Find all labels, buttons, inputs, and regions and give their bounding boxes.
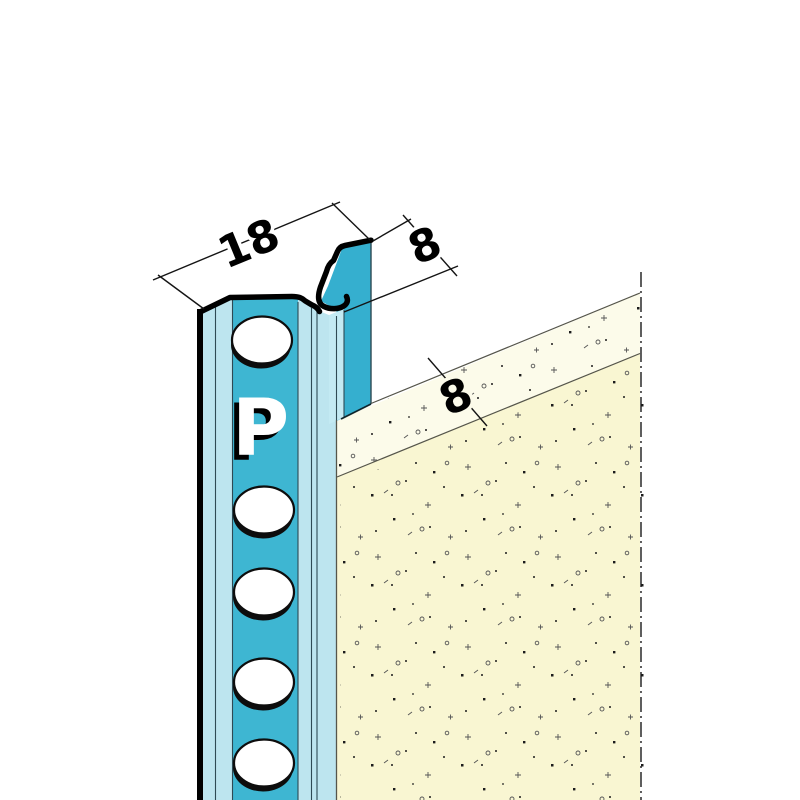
perforation-hole [233, 487, 294, 539]
perforation-hole [231, 317, 292, 369]
perforation-hole [233, 569, 294, 621]
technical-drawing: P P 18 8 8 [0, 0, 800, 800]
perforation-hole [233, 740, 294, 792]
brand-mark: P [232, 384, 289, 474]
perforation-hole [233, 659, 294, 711]
technical-drawing-canvas: P P 18 8 8 [0, 0, 800, 800]
profile-perforation-band [233, 299, 299, 800]
